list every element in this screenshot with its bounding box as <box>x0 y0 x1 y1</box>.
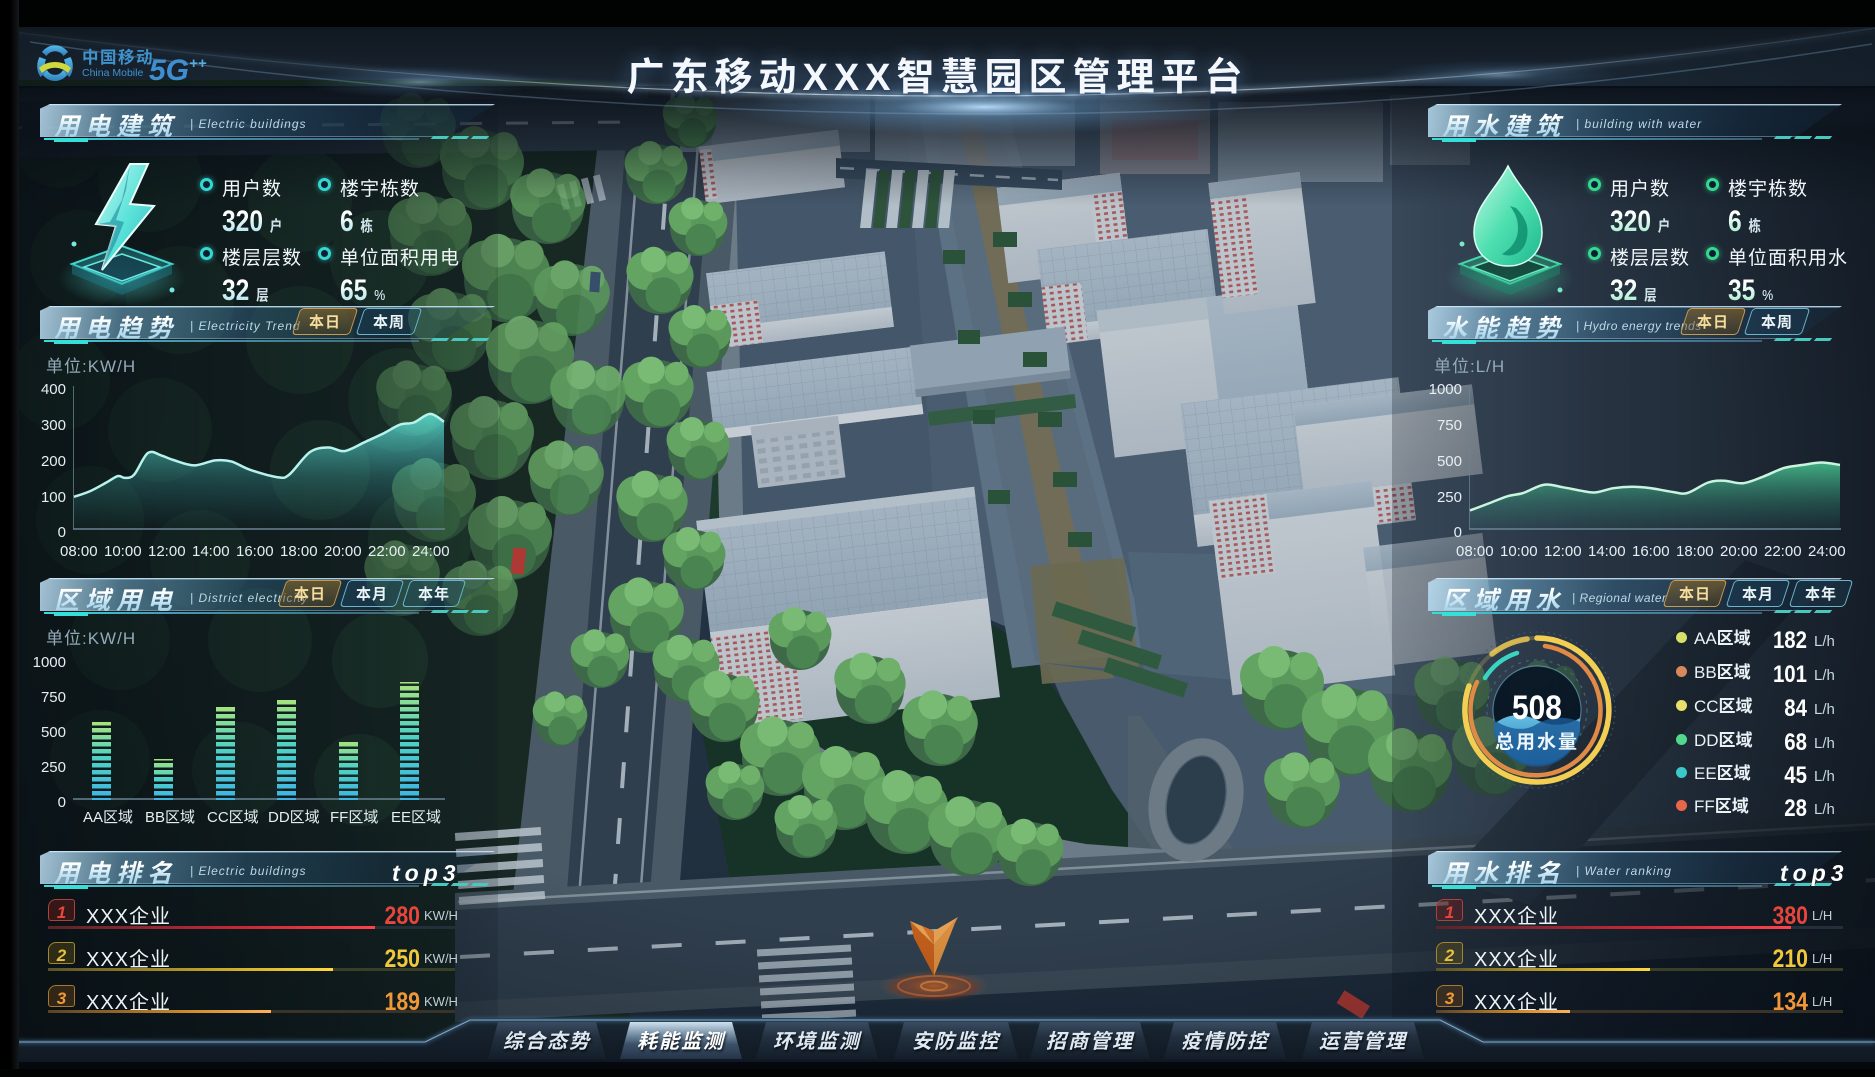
svg-text:China Mobile: China Mobile <box>82 65 143 80</box>
